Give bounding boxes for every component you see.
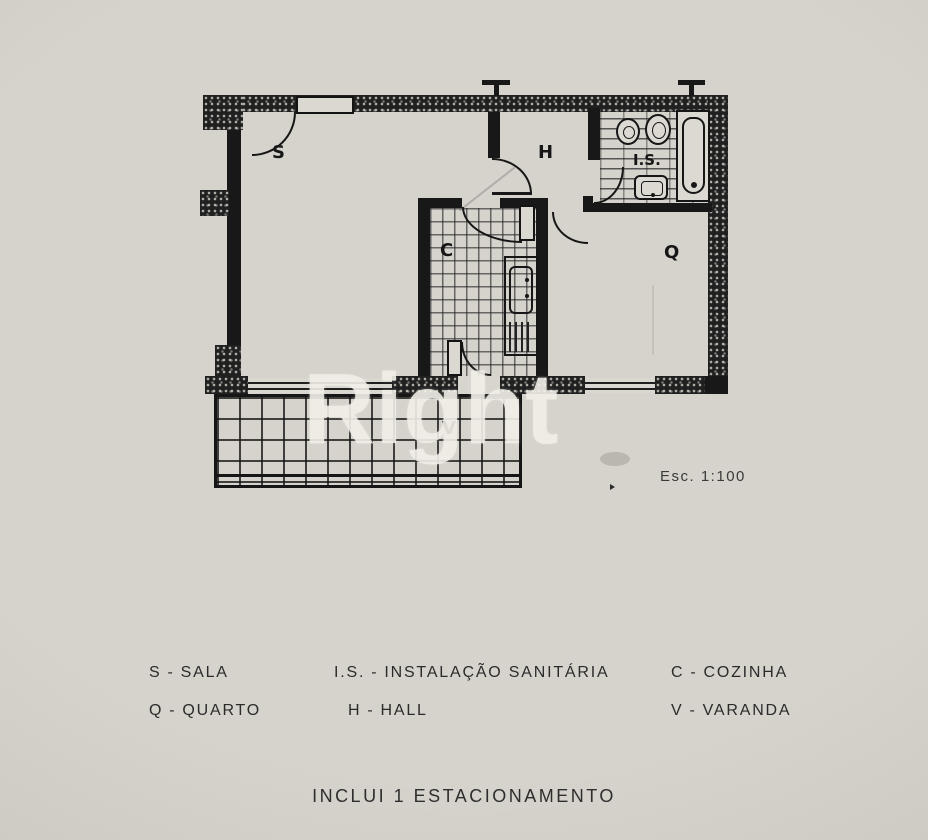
- room-label-sala: S: [272, 142, 285, 163]
- balcony-floor-grid: [214, 394, 522, 488]
- legend-item-quarto: Q-QUARTO: [149, 702, 261, 720]
- kitchen-balcony-door-opening: [458, 376, 500, 394]
- bidet: [645, 114, 671, 145]
- legend-item-sala: S-SALA: [149, 664, 229, 682]
- scan-smudge: [600, 452, 630, 466]
- legend-name: INSTALAÇÃO SANITÁRIA: [384, 664, 609, 681]
- legend-name: COZINHA: [704, 664, 789, 681]
- parking-note: INCLUI 1 ESTACIONAMENTO: [0, 786, 928, 807]
- room-label-cozinha: C: [440, 240, 454, 261]
- wall-left: [227, 95, 241, 378]
- legend-name: HALL: [381, 702, 428, 719]
- legend-key: Q: [149, 702, 163, 719]
- wall-bottom-segment: [392, 376, 458, 394]
- balcony-edge-line: [217, 474, 519, 477]
- sink-tap-dot: [525, 278, 529, 282]
- door-leaf-sala-hall: [492, 192, 532, 195]
- legend-separator: -: [689, 702, 696, 719]
- room-label-quarto: Q: [664, 242, 680, 263]
- legend-item-hall: H-HALL: [348, 702, 428, 720]
- legend-key: S: [149, 664, 161, 681]
- sala-balcony-window: [248, 378, 392, 393]
- washbasin-drain: [651, 193, 655, 197]
- door-leaf-kitchen-balcony: [447, 340, 462, 376]
- legend-item-cozinha: C-COZINHA: [671, 664, 788, 682]
- washbasin: [634, 175, 668, 200]
- wall-corner-bottom-left: [215, 345, 241, 378]
- wall-bottom-segment: [500, 376, 585, 394]
- legend-name: SALA: [181, 664, 229, 681]
- wall-kitchen-left: [418, 198, 430, 376]
- door-arc-quarto: [552, 212, 588, 244]
- vent-marker-bar: [482, 80, 510, 85]
- scan-artifact-mark: [610, 484, 615, 490]
- legend-item-varanda: V-VARANDA: [671, 702, 791, 720]
- door-arc-sala-hall: [492, 158, 532, 194]
- toilet-bowl: [623, 126, 635, 139]
- legend-key: I.S.: [334, 664, 365, 681]
- vent-marker-bar: [678, 80, 705, 85]
- wall-pier-left: [200, 190, 229, 216]
- bathtub: [676, 110, 710, 202]
- wall-right: [708, 95, 728, 394]
- door-leaf-kitchen: [519, 205, 535, 241]
- wall-bottom-segment: [655, 376, 708, 394]
- room-label-varanda: V: [442, 418, 456, 439]
- quarto-window: [585, 378, 655, 393]
- legend-separator: -: [167, 664, 174, 681]
- legend-key: V: [671, 702, 683, 719]
- wall-bottom-segment: [205, 376, 248, 394]
- legend-item-instalacao-sanitaria: I.S.-INSTALAÇÃO SANITÁRIA: [334, 664, 609, 682]
- paper-scratch: [652, 285, 654, 355]
- scanned-floor-plan-page: S H I.S. C Q V Esc. 1:100 Right S-SALA I…: [0, 0, 928, 840]
- legend-separator: -: [371, 664, 378, 681]
- sink-tap-dot: [525, 294, 529, 298]
- room-label-hall: H: [538, 142, 554, 163]
- scale-label: Esc. 1:100: [660, 468, 746, 485]
- toilet: [616, 118, 640, 145]
- bathtub-drain: [691, 182, 697, 188]
- wall-corner-top-left: [203, 95, 243, 130]
- kitchen-sink: [509, 266, 533, 314]
- legend-key: H: [348, 702, 361, 719]
- entrance-door-leaf: [296, 96, 354, 114]
- legend-separator: -: [367, 702, 374, 719]
- wall-sala-hall-stub: [488, 112, 500, 158]
- legend-key: C: [671, 664, 684, 681]
- wall-corner-bottom-right: [705, 376, 728, 394]
- bidet-bowl: [652, 122, 666, 139]
- legend-separator: -: [690, 664, 697, 681]
- wall-quarto-door-pier: [583, 196, 593, 212]
- legend-name: QUARTO: [182, 702, 261, 719]
- legend-separator: -: [169, 702, 176, 719]
- legend-name: VARANDA: [703, 702, 792, 719]
- wall-bathroom-left: [588, 108, 600, 160]
- room-label-instalacao-sanitaria: I.S.: [633, 151, 661, 169]
- dish-rack: [509, 322, 533, 352]
